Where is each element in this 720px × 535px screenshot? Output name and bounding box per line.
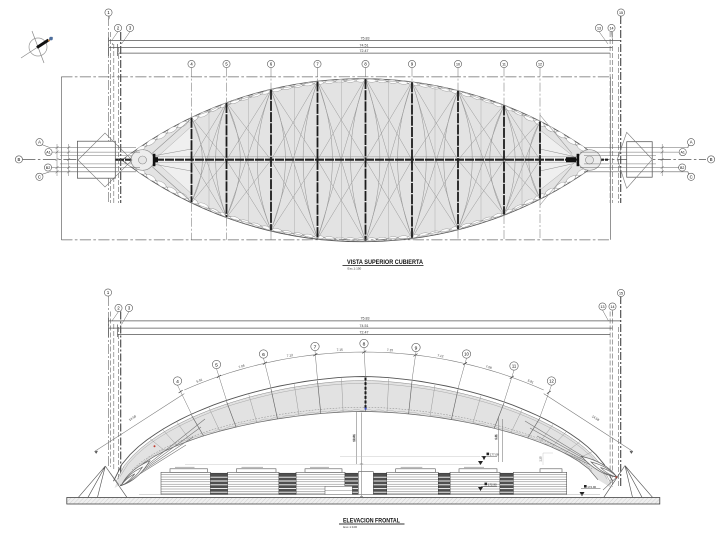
- svg-text:14: 14: [610, 26, 614, 30]
- svg-text:A1: A1: [680, 150, 684, 154]
- svg-text:15: 15: [619, 291, 623, 295]
- svg-text:72.47: 72.47: [360, 49, 369, 53]
- svg-text:7.15: 7.15: [337, 348, 344, 352]
- svg-text:6: 6: [262, 352, 265, 358]
- svg-text:12.61: 12.61: [352, 434, 356, 442]
- svg-text:A: A: [690, 140, 693, 145]
- svg-text:7: 7: [314, 344, 317, 350]
- svg-text:B: B: [18, 157, 21, 162]
- svg-text:B: B: [710, 157, 713, 162]
- svg-text:B2: B2: [680, 166, 684, 170]
- svg-text:Esc.1:100: Esc.1:100: [343, 525, 357, 529]
- svg-text:10: 10: [456, 62, 460, 66]
- svg-text:75.83: 75.83: [361, 36, 370, 40]
- svg-text:12: 12: [538, 62, 542, 66]
- svg-text:1.11: 1.11: [494, 434, 498, 440]
- svg-text:13: 13: [597, 26, 601, 30]
- svg-text:14: 14: [611, 305, 615, 309]
- svg-text:13: 13: [601, 305, 605, 309]
- svg-text:74.51: 74.51: [360, 43, 369, 47]
- svg-text:74.51: 74.51: [360, 324, 369, 328]
- svg-text:C: C: [690, 174, 693, 179]
- svg-text:Esc.1:150: Esc.1:150: [348, 267, 362, 271]
- svg-text:172.90: 172.90: [488, 482, 497, 486]
- svg-text:A: A: [38, 140, 41, 145]
- svg-text:15: 15: [619, 11, 623, 15]
- svg-text:14.58: 14.58: [591, 414, 600, 422]
- svg-text:8: 8: [363, 341, 366, 347]
- svg-text:B2: B2: [46, 166, 50, 170]
- svg-text:12: 12: [549, 379, 554, 384]
- svg-text:14.58: 14.58: [128, 414, 137, 422]
- svg-text:11: 11: [512, 364, 517, 369]
- svg-text:1.15: 1.15: [539, 456, 543, 462]
- svg-text:4: 4: [176, 379, 179, 385]
- svg-text:75.83: 75.83: [361, 317, 370, 321]
- svg-text:172.90: 172.90: [587, 485, 596, 489]
- svg-text:7.15: 7.15: [387, 348, 394, 352]
- svg-text:C: C: [38, 174, 41, 179]
- svg-text:7.12: 7.12: [287, 353, 294, 358]
- svg-text:11: 11: [502, 62, 506, 66]
- svg-text:A1: A1: [46, 150, 50, 154]
- svg-text:7.12: 7.12: [437, 353, 444, 358]
- svg-text:72.47: 72.47: [360, 330, 369, 334]
- svg-text:10: 10: [464, 352, 469, 357]
- svg-text:4.: 4.: [112, 42, 114, 46]
- svg-text:177.08: 177.08: [490, 452, 499, 456]
- svg-text:9: 9: [415, 345, 418, 351]
- svg-text:5: 5: [215, 362, 218, 368]
